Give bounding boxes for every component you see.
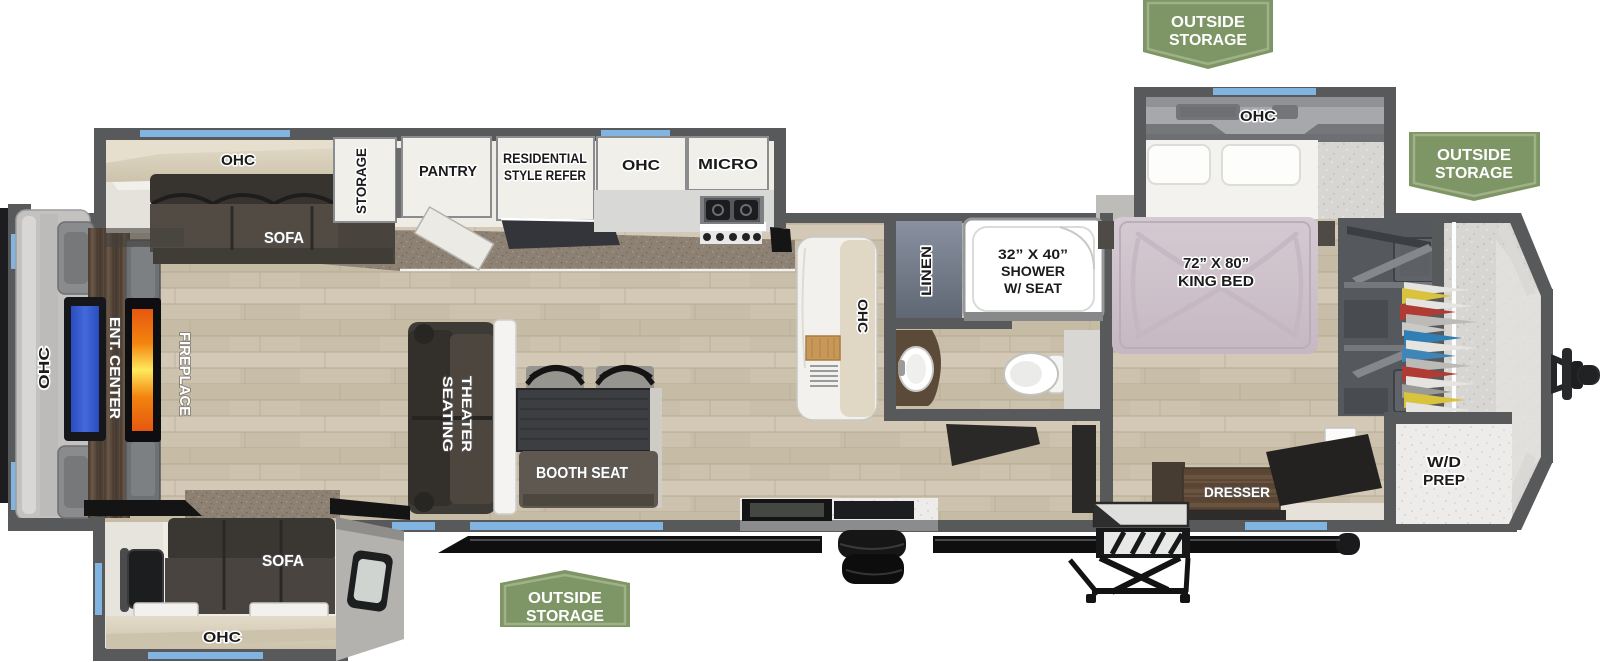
svg-text:W/D: W/D — [1427, 455, 1461, 471]
svg-text:OHC: OHC — [622, 157, 660, 174]
svg-text:THEATER: THEATER — [459, 376, 475, 452]
svg-text:OHC: OHC — [203, 629, 241, 646]
svg-text:STORAGE: STORAGE — [1169, 32, 1247, 49]
svg-text:OHC: OHC — [855, 299, 871, 333]
svg-text:SOFA: SOFA — [264, 230, 304, 247]
svg-text:DRESSER: DRESSER — [1204, 484, 1270, 500]
svg-text:STORAGE: STORAGE — [526, 608, 604, 625]
svg-text:OUTSIDE: OUTSIDE — [1171, 14, 1245, 31]
svg-text:SOFA: SOFA — [262, 553, 304, 570]
svg-text:72” X 80”: 72” X 80” — [1183, 256, 1249, 272]
svg-text:MICRO: MICRO — [698, 156, 758, 173]
svg-text:LINEN: LINEN — [918, 246, 934, 296]
svg-text:W/ SEAT: W/ SEAT — [1004, 281, 1063, 296]
svg-text:SEATING: SEATING — [440, 376, 456, 452]
svg-text:OHC: OHC — [1240, 109, 1277, 125]
svg-text:SHOWER: SHOWER — [1001, 264, 1065, 279]
svg-text:STORAGE: STORAGE — [353, 148, 369, 214]
svg-text:OHC: OHC — [221, 152, 255, 169]
svg-text:32” X 40”: 32” X 40” — [998, 247, 1068, 262]
svg-text:OUTSIDE: OUTSIDE — [1437, 147, 1511, 164]
svg-text:ENT. CENTER: ENT. CENTER — [106, 317, 123, 419]
svg-text:OHC: OHC — [37, 346, 53, 389]
svg-text:BOOTH SEAT: BOOTH SEAT — [536, 465, 628, 482]
svg-text:STORAGE: STORAGE — [1435, 165, 1513, 182]
svg-text:FIREPLACE: FIREPLACE — [176, 332, 193, 416]
svg-text:STYLE REFER: STYLE REFER — [504, 168, 586, 183]
svg-text:OUTSIDE: OUTSIDE — [528, 590, 602, 607]
svg-text:PREP: PREP — [1423, 473, 1465, 489]
svg-text:PANTRY: PANTRY — [419, 163, 477, 180]
svg-text:RESIDENTIAL: RESIDENTIAL — [503, 151, 587, 166]
svg-text:KING BED: KING BED — [1178, 274, 1254, 290]
